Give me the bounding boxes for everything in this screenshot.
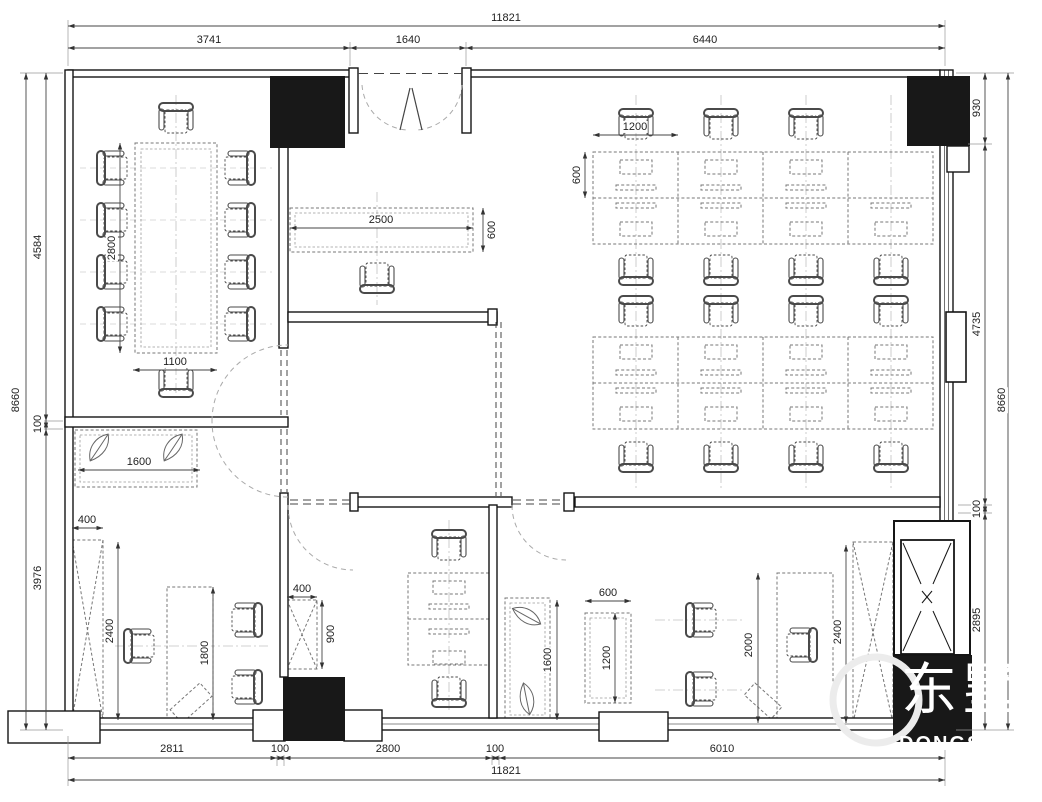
structural-columns — [270, 76, 972, 742]
dim-workstation-depth: 600 — [571, 165, 583, 185]
dim-right-3: 100 — [971, 499, 983, 519]
dim-top-3: 6440 — [692, 34, 718, 46]
dim-left-overall: 8660 — [10, 387, 22, 413]
dim-right-4: 2895 — [971, 607, 983, 633]
dim-office-mid-cabinet-length: 900 — [325, 624, 337, 644]
dim-right-overall: 8660 — [996, 387, 1008, 413]
dim-top-1: 3741 — [196, 34, 222, 46]
office-left-furniture — [72, 430, 262, 723]
dim-bottom-2: 100 — [270, 743, 290, 755]
open-office-furniture — [593, 152, 933, 429]
dim-office-right-desk: 2000 — [743, 632, 755, 658]
dim-workstation-width: 1200 — [622, 121, 648, 133]
walls — [65, 68, 953, 730]
dim-office-left-sideboard: 1600 — [126, 456, 152, 468]
dim-office-left-cabinet-width: 400 — [77, 514, 97, 526]
dim-reception-counter-length: 2500 — [368, 214, 394, 226]
dim-office-right-table-width: 600 — [598, 587, 618, 599]
dim-office-left-desk: 1800 — [199, 640, 211, 666]
dim-left-3: 3976 — [32, 565, 44, 591]
dim-right-2: 4735 — [971, 311, 983, 337]
dim-conference-table-length: 2800 — [106, 235, 118, 261]
dim-office-left-cabinet-length: 2400 — [104, 618, 116, 644]
conference-room-furniture — [97, 103, 255, 397]
dim-conference-table-width: 1100 — [162, 356, 188, 368]
dim-bottom-overall: 11821 — [490, 765, 522, 777]
dim-office-mid-cabinet-width: 400 — [292, 583, 312, 595]
dim-office-right-cabinet: 2400 — [832, 619, 844, 645]
entrance-door-leaves — [400, 88, 422, 130]
dim-right-1: 930 — [971, 98, 983, 118]
floorplan-page: 11821 3741 1640 6440 2811 100 2800 100 6… — [0, 0, 1042, 802]
dim-top-overall: 11821 — [490, 12, 522, 24]
watermark-latin-text: DONGSH — [899, 734, 999, 754]
dim-left-2: 100 — [32, 414, 44, 434]
centerlines — [115, 95, 891, 712]
dim-left-1: 4584 — [32, 234, 44, 260]
dim-reception-counter-depth: 600 — [486, 220, 498, 240]
dim-bottom-1: 2811 — [159, 743, 185, 755]
dim-bottom-4: 100 — [485, 743, 505, 755]
dimension-lines — [26, 26, 1008, 780]
dim-office-right-table-length: 1200 — [601, 645, 613, 671]
elevator-shaft — [894, 521, 970, 655]
watermark-cjk-text: 东墅 — [901, 662, 1025, 718]
floorplan-drawing — [0, 0, 1042, 802]
dim-bottom-5: 6010 — [709, 743, 735, 755]
dim-bottom-3: 2800 — [375, 743, 401, 755]
dim-top-2: 1640 — [395, 34, 421, 46]
dim-office-right-sideboard: 1600 — [542, 647, 554, 673]
